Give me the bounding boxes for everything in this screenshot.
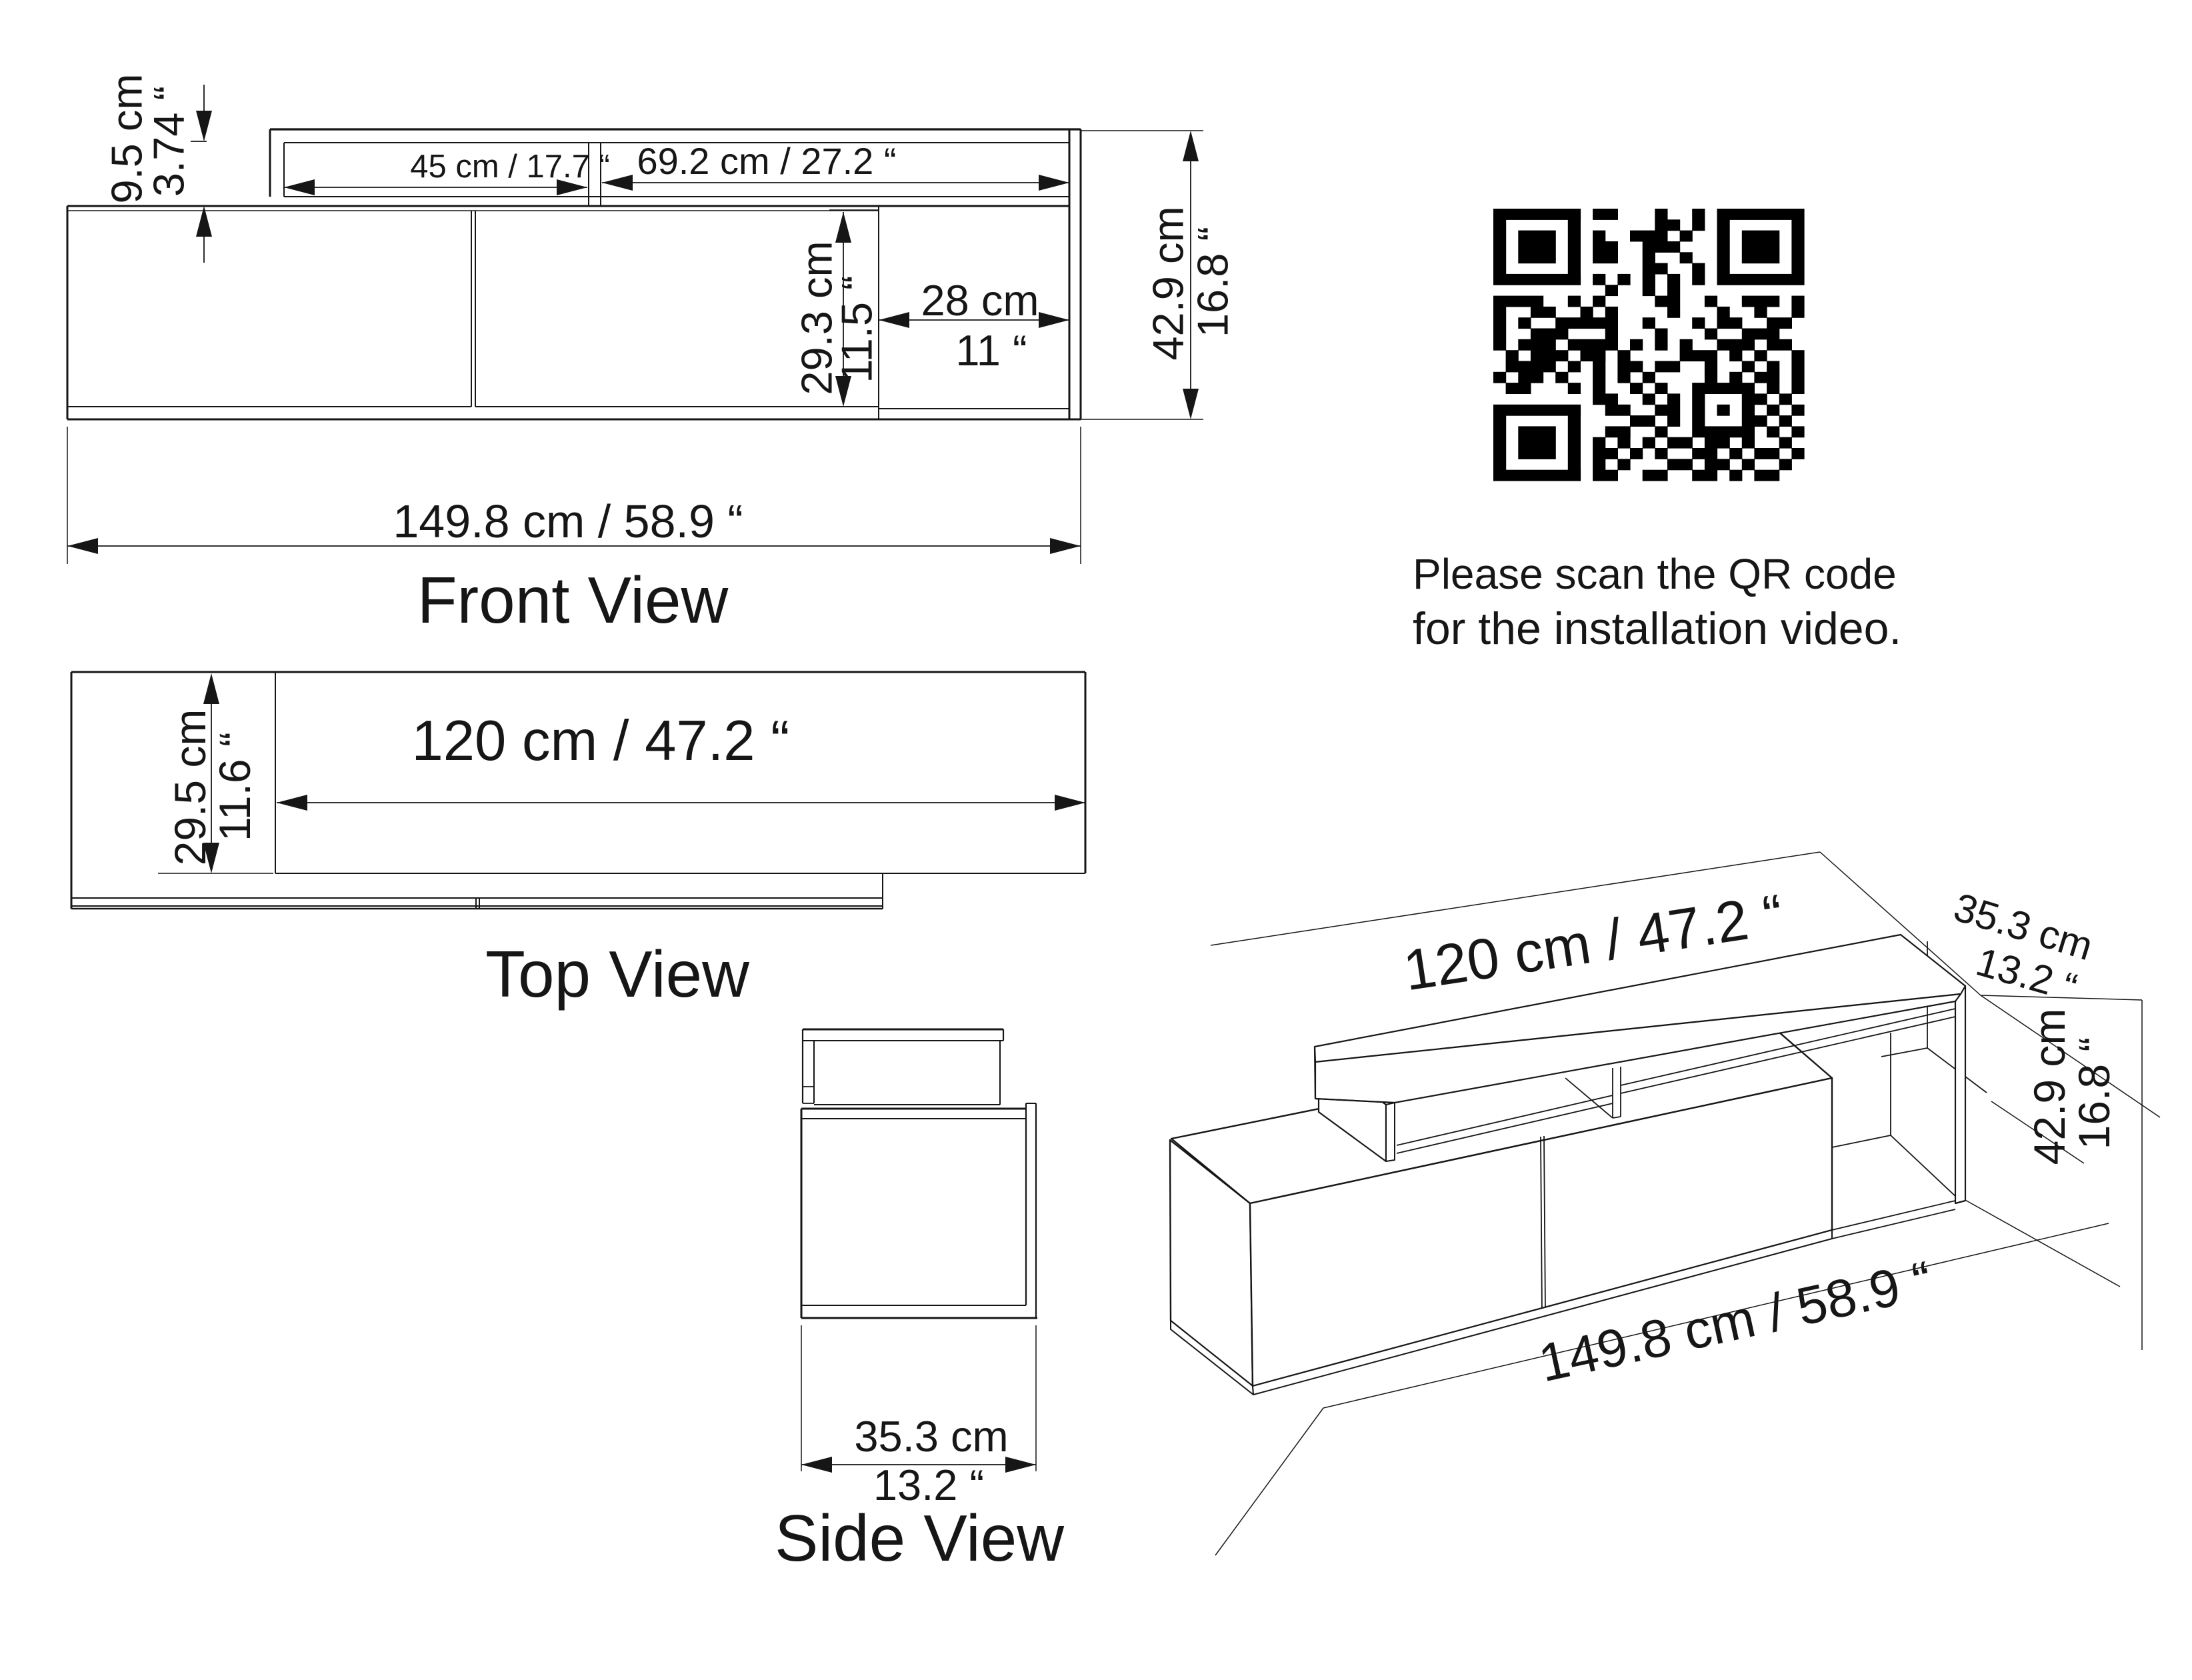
svg-text:11.5 “: 11.5 “ [833,275,881,383]
svg-text:11.6 “: 11.6 “ [210,732,259,841]
svg-text:29.5 cm: 29.5 cm [165,709,215,866]
svg-text:28 cm: 28 cm [921,276,1039,325]
svg-text:35.3 cm: 35.3 cm [854,1412,1008,1461]
svg-text:120 cm / 47.2 “: 120 cm / 47.2 “ [412,709,790,773]
svg-text:16.8 “: 16.8 “ [1189,227,1237,337]
svg-text:45 cm / 17.7 “: 45 cm / 17.7 “ [410,149,610,185]
svg-text:42.9 cm: 42.9 cm [2025,1009,2074,1165]
svg-text:3.74 “: 3.74 “ [145,86,193,197]
svg-text:16.8 “: 16.8 “ [2069,1037,2119,1150]
svg-text:for the installation video.: for the installation video. [1413,603,1901,654]
svg-text:Please scan the QR code: Please scan the QR code [1413,550,1897,598]
svg-text:Front View: Front View [417,563,729,637]
svg-text:Top View: Top View [485,937,750,1011]
svg-text:69.2 cm / 27.2 “: 69.2 cm / 27.2 “ [637,140,896,182]
svg-text:11 “: 11 “ [955,326,1027,375]
svg-text:Side View: Side View [775,1501,1065,1575]
svg-text:149.8 cm / 58.9 “: 149.8 cm / 58.9 “ [393,495,743,547]
svg-text:42.9 cm: 42.9 cm [1144,206,1193,360]
